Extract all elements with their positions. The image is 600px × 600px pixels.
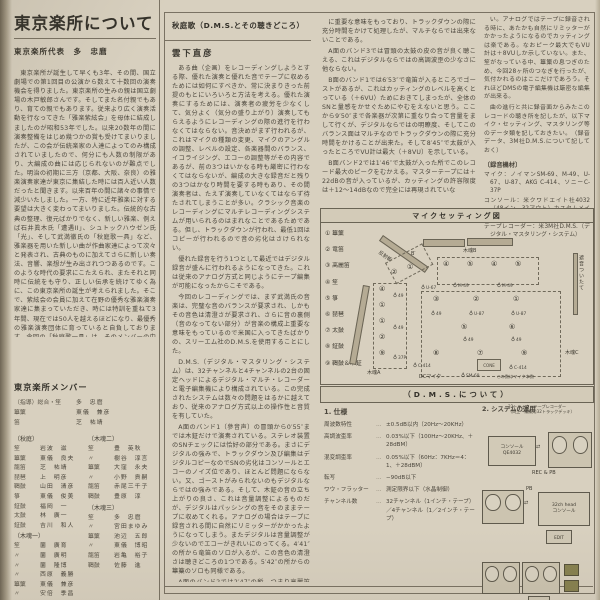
mic-setting-diagram: マイクセッティング図 ① 篳篥② 竜笛③ 高麗笛④ 笙⑤ 箏⑥ 琵琶⑦ 太鼓⑧ …	[320, 208, 594, 385]
member-name: 吉川 和人	[40, 522, 74, 532]
member-name: 薗 隆博	[40, 562, 68, 572]
group-title: （秋庭）	[14, 434, 82, 445]
spec-row: 高調波歪率 … 0.03%以下（100Hz〜20KHz、＋28dBM）	[324, 433, 476, 449]
legend-item: ③ 高麗笛	[325, 258, 371, 274]
member-name: 東儀 兼彦	[76, 408, 110, 418]
spec-term: 混変調歪率	[324, 454, 376, 470]
column-divider	[159, 0, 160, 600]
reflector-bar	[423, 239, 465, 247]
instrument-marker-④: ④	[491, 261, 497, 268]
body-paragraph: A面のバンド1（參音声）の冒頭から0′55″までは木鉦だけで演奏されている。ステ…	[172, 423, 310, 576]
member-row: 〃 西原 義勝	[14, 571, 82, 581]
member-name: 池辺 五郎	[114, 533, 148, 543]
member-role: 箏	[14, 493, 40, 503]
mic-49: 49	[393, 325, 404, 331]
member-row: 笙 薗 廣育	[14, 542, 82, 552]
liner-notes-page: 東京楽所について 東京楽所代表 多 忠麿 東京楽所が誕生して早くも3年、その間、…	[0, 0, 600, 600]
body-paragraph: 今回のレコーディングでは、まず武満氏の音楽は、完璧な音のバランスが要求され、しか…	[172, 293, 310, 356]
member-name: 多 忠麿	[76, 398, 104, 408]
dms-system-section: 2. システムの運用 32トラック・テープレコーダー （同上・編集用32トラック…	[482, 404, 592, 586]
mic-C-414: C-414	[509, 365, 527, 371]
mic-49: 49	[463, 337, 474, 343]
body-paragraph: A面のバンド3では冒頭の太鼓の皮の音が良く聴こえる、これはデジタルならではの高調…	[322, 47, 476, 74]
instrument-marker-⑨: ⑨	[379, 350, 385, 357]
member-name: 安倍 季昌	[40, 590, 74, 596]
member-row: 鉦鼓 吉川 和人	[14, 522, 82, 532]
member-row: 笙 多 忠麿	[88, 514, 156, 524]
diagram-node: DCマイク	[419, 373, 441, 380]
spec-heading: 1. 仕様	[324, 406, 476, 416]
spec-term: 転写	[324, 474, 376, 482]
essay-text: 東京楽所が誕生して早くも3年、その間、国立劇場での第1回目の公演から数えて十数回…	[14, 69, 156, 337]
spec-value: −90dB以下	[386, 474, 476, 482]
member-row: 琵琶 上 明彦	[14, 474, 82, 484]
tape-recorder-icon	[522, 562, 560, 594]
member-name: 西原 義勝	[40, 571, 74, 581]
member-name: 宮田まゆみ	[114, 523, 148, 533]
member-role: 笙	[14, 445, 40, 455]
spec-term: 周波数特性	[324, 421, 376, 429]
members-groups: （秋庭） 笙 岩波 滋 篳篥 東儀 良夫	[14, 434, 156, 596]
member-name: 芝 祐靖	[76, 418, 104, 428]
spec-value: 32チャンネル（1インチ・テープ）／4チャンネル（1／2インチ・テープ）	[386, 498, 476, 523]
members-group-column-b: （木魂二） 笙 豊 英秋 〃 樹谷 淳言	[88, 434, 156, 596]
instrument-marker-①: ①	[379, 302, 385, 309]
instrument-marker-⑨: ⑨	[521, 350, 527, 357]
instrument-marker-②: ②	[379, 334, 385, 341]
member-row: 箏 東儀 俊美	[14, 493, 82, 503]
diagram-node: 木魂A	[367, 369, 380, 376]
mic-49: 49	[511, 337, 522, 343]
group-outline	[437, 257, 539, 285]
group-rows: 笙 岩波 滋 篳篥 東儀 良夫 龍笛 芝 祐靖	[14, 445, 82, 531]
member-role: 篳篥	[88, 464, 114, 474]
instrument-marker-⑦: ⑦	[477, 350, 483, 357]
member-role: 篳篥	[14, 408, 76, 418]
member-row: 鞨鼓 山田 清彦	[14, 483, 82, 493]
spec-rows: 周波数特性 … ±0.5dB以内（20Hz〜20KHz） 高調波歪率 … 0.0…	[324, 421, 476, 523]
member-row: （指導）総合・笙 多 忠麿	[14, 398, 156, 408]
body-paragraph: い。アナログではテープに録音される時に、あたかも自然にリミッターがかかったように…	[484, 16, 590, 102]
dms-spec-section: 1. 仕様 周波数特性 … ±0.5dB以内（20Hz〜20KHz） 高調波歪率…	[324, 406, 476, 586]
instrument-marker-⑤: ⑤	[467, 261, 473, 268]
group-title: （木魂一）	[14, 531, 82, 542]
member-row: 笙 岩波 滋	[14, 445, 82, 455]
group-rows: 笙 薗 廣育 〃 薗 廣明 〃 薗 隆博	[14, 542, 82, 596]
member-row: 〃 東儀 博昭	[88, 542, 156, 552]
member-name: 東儀 俊美	[40, 493, 74, 503]
article-author: 雲下直彦	[172, 47, 310, 59]
console-box: コンソール QE4032	[488, 436, 536, 466]
spec-leader: …	[376, 498, 386, 523]
member-role: 〃	[14, 552, 40, 562]
title-rule	[14, 38, 156, 39]
member-role: 〃	[88, 542, 114, 552]
member-row: 篳篥 東儀 良夫	[14, 455, 82, 465]
article-body-column-1: ある曲（企画）をレコーディングしようとする際、優れた演奏と優れた音でテープに収め…	[172, 64, 310, 582]
instrument-marker-②: ②	[391, 269, 397, 276]
spec-row: 混変調歪率 … 0.05%以下（60Hz：7KHz＝4：1、＋28dBM）	[324, 454, 476, 470]
group-title: （木魂二）	[88, 434, 156, 445]
mic-stage: ① 篳篥② 竜笛③ 高麗笛④ 笙⑤ 箏⑥ 琵琶⑦ 太鼓⑧ 鉦鼓⑨ 鞨鼓＆木鉦 反…	[321, 223, 591, 382]
instrument-marker-④: ④	[443, 261, 449, 268]
spec-term: チャンネル数	[324, 498, 376, 523]
instrument-marker-①: ①	[407, 264, 413, 271]
member-row: 篳篥 池辺 五郎	[88, 533, 156, 543]
member-role: 龍笛	[14, 464, 40, 474]
member-row: 〃 薗 廣明	[14, 552, 82, 562]
dms-section-title: （D.M.S.について）	[320, 386, 594, 403]
system-canvas: コンソール QE4032⇄REC & PBPB⇄32ch head コンソールE…	[482, 414, 592, 586]
member-name: 岩波 滋	[40, 445, 68, 455]
member-role: 笛	[14, 418, 76, 428]
member-role: 篳篥	[88, 533, 114, 543]
spec-leader: …	[376, 454, 386, 470]
instrument-marker-①: ①	[379, 318, 385, 325]
instrument-marker-⑥: ⑥	[509, 324, 515, 331]
member-name: 薗 廣育	[40, 542, 68, 552]
mic-diagram-title: マイクセッティング図	[321, 209, 593, 223]
member-name: 福岡 一	[40, 503, 68, 513]
member-role: 鞨鼓	[88, 493, 114, 503]
member-row: 〃 樹谷 淳言	[88, 455, 156, 465]
page-right-edge-shadow	[595, 0, 600, 600]
diagram-node: 木魂C	[565, 349, 579, 356]
member-name: 豊 英秋	[114, 445, 142, 455]
mic-SM-69: SM-69	[461, 373, 479, 379]
spec-row: ワウ・フラッター … 測定限界以下（水晶制御）	[324, 486, 476, 494]
member-row: 笛 芝 祐靖	[14, 418, 156, 428]
body-paragraph: B面バンド2では1′46″で太鼓が入った所でこのレコード最大のピークをむかえる。…	[322, 159, 476, 195]
diagram-node: 遮音ついたて	[578, 255, 585, 291]
diagram-node: EDIT	[546, 530, 572, 544]
member-role: 〃	[14, 571, 40, 581]
body-paragraph: ある曲（企画）をレコーディングしようとする際、優れた演奏と優れた音でテープに収め…	[172, 64, 310, 253]
member-name: 芝 祐靖	[40, 464, 68, 474]
legend-item: ② 竜笛	[325, 242, 371, 258]
members-leaders: （指導）総合・笙 多 忠麿 篳篥 東儀 兼彦 笛 芝 祐靖	[14, 398, 156, 428]
left-column: 東京楽所について 東京楽所代表 多 忠麿 東京楽所が誕生して早くも3年、その間、…	[14, 8, 156, 596]
member-row: 〃 小野 貢嗣	[88, 474, 156, 484]
mic-37P: 37P	[393, 355, 406, 361]
spec-term: 高調波歪率	[324, 433, 376, 449]
diagram-node: 木魂B	[463, 247, 476, 254]
legend-item: ⑧ 鉦鼓	[325, 339, 371, 355]
body-paragraphs: い。アナログではテープに録音される時に、あたかも自然にリミッターがかかったように…	[484, 16, 590, 156]
spec-leader: …	[376, 474, 386, 482]
member-row: 太鼓 林 廣一	[14, 512, 82, 522]
spec-row: 転写 … −90dB以下	[324, 474, 476, 482]
group-rows: 笙 多 忠麿 〃 宮田まゆみ 篳篥 池辺 五郎	[88, 514, 156, 572]
member-role: 鉦鼓	[14, 503, 40, 513]
members-heading: 東京楽所メンバー	[14, 381, 156, 393]
member-role: 鞨鼓	[14, 483, 40, 493]
member-row: 篳篥 東儀 兼彦	[14, 581, 82, 591]
member-name: 東儀 良夫	[40, 455, 74, 465]
member-role: 鞨鼓	[88, 562, 114, 572]
spec-leader: …	[376, 486, 386, 494]
mic-M-49: M-49	[453, 283, 469, 289]
member-name: 薗 廣明	[40, 552, 68, 562]
member-name: 樹谷 淳言	[114, 455, 148, 465]
page-left-edge-shadow	[0, 0, 12, 600]
mic-M-49: M-49	[497, 283, 513, 289]
member-row: 鞨鼓 佐藤 進	[88, 562, 156, 572]
member-role: 〃	[14, 590, 40, 596]
diagram-node: ○の数はマイク本数	[497, 374, 534, 380]
body-paragraph: D.M.S.（デジタル・マスタリング・システム）は、32チャンネルと4チャンネル…	[172, 358, 310, 421]
member-name: 東儀 博昭	[114, 542, 148, 552]
spec-value: ±0.5dB以内（20Hz〜20KHz）	[386, 421, 476, 429]
member-role: 龍笛	[88, 483, 114, 493]
article-title-rule	[165, 40, 311, 41]
diagram-node: REC & PB	[532, 470, 556, 476]
instrument-marker-③: ③	[433, 296, 439, 303]
member-row: 〃 安倍 季昌	[14, 590, 82, 596]
mic-U-87: U-87	[469, 311, 484, 317]
article-body-column-2: に重要な意味をもっており、トラックダウンの際に充分時間をかけて処理したが、マルチ…	[322, 18, 476, 204]
mic-U-87: U-87	[511, 311, 526, 317]
spec-row: 周波数特性 … ±0.5dB以内（20Hz〜20KHz）	[324, 421, 476, 429]
instrument-marker-⑤: ⑤	[461, 324, 467, 331]
diagram-node: ⇄	[524, 500, 528, 506]
member-name: 山田 清彦	[40, 483, 74, 493]
member-row: 鉦鼓 福岡 一	[14, 503, 82, 513]
group-title: （木魂三）	[88, 503, 156, 514]
mic-49: 49	[393, 293, 404, 299]
instrument-marker-①: ①	[513, 296, 519, 303]
console-box: 32ch head コンソール	[538, 492, 590, 526]
diagram-node: PB	[526, 486, 532, 492]
reflector-bar	[467, 238, 513, 246]
tape-recorder-icon	[482, 490, 524, 524]
essay-paragraph: 東京楽所が誕生して早くも3年、その間、国立劇場での第1回目の公演から数えて十数回…	[14, 69, 156, 337]
member-role: 篳篥	[14, 455, 40, 465]
legend-item: ① 篳篥	[325, 226, 371, 242]
members-group-column-a: （秋庭） 笙 岩波 滋 篳篥 東儀 良夫	[14, 434, 82, 596]
member-name: 佐藤 進	[114, 562, 142, 572]
member-name: 小野 貢嗣	[114, 474, 148, 484]
body-paragraph: に重要な意味をもっており、トラックダウンの際に充分時間をかけて処理したが、マルチ…	[322, 18, 476, 45]
member-name: 上 明彦	[40, 474, 68, 484]
member-row: 篳篥 大窪 永夫	[88, 464, 156, 474]
member-role: 琵琶	[14, 474, 40, 484]
spec-leader: …	[376, 421, 386, 429]
member-role: 笙	[88, 445, 114, 455]
member-row: 笙 豊 英秋	[88, 445, 156, 455]
representative-line: 東京楽所代表 多 忠麿	[14, 46, 156, 57]
member-name: 林 廣一	[40, 512, 68, 522]
member-row: 〃 薗 隆博	[14, 562, 82, 572]
page-title: 東京楽所について	[14, 10, 156, 34]
group-rows: 笙 豊 英秋 〃 樹谷 淳言 篳篥 大窪 永夫	[88, 445, 156, 503]
diagram-node	[564, 580, 579, 592]
equipment-item: マイク：ノイマンSM-69、M-49、U-67、U-87、AKG C-414、ソ…	[484, 171, 590, 196]
member-name: 豊原 淳	[114, 493, 142, 503]
tape-recorder-icon	[548, 432, 592, 468]
member-row: 龍笛 岩亀 裕子	[88, 552, 156, 562]
spec-row: チャンネル数 … 32チャンネル（1インチ・テープ）／4チャンネル（1／2インチ…	[324, 498, 476, 523]
instrument-marker-⑧: ⑧	[433, 350, 439, 357]
member-role: 太鼓	[14, 512, 40, 522]
body-paragraph: B面のバンド1では6′53″で竜笛が入るところでゴーストがあるが、これはカッティ…	[322, 76, 476, 157]
member-row: 龍笛 赤尾三千子	[88, 483, 156, 493]
member-role: 〃	[14, 562, 40, 572]
member-role: 笙	[88, 514, 114, 524]
diagram-node: CONE	[477, 359, 501, 371]
member-role: 〃	[88, 455, 114, 465]
diagram-node	[564, 564, 579, 576]
member-row: 〃 宮田まゆみ	[88, 523, 156, 533]
member-name: 大窪 永夫	[114, 464, 148, 474]
member-name: 岩亀 裕子	[114, 552, 148, 562]
mic-C-414: C-414	[413, 363, 431, 369]
member-role: 龍笛	[88, 552, 114, 562]
body-paragraph: 曲の進行と共に録音面からみたこのレコードの聴き所を記したが、以下マイク・セッティ…	[484, 104, 590, 156]
mic-49: 49	[431, 311, 442, 317]
member-role: （指導）総合・笙	[14, 398, 76, 408]
spec-value: 測定限界以下（水晶制御）	[386, 486, 476, 494]
member-role: 篳篥	[14, 581, 40, 591]
instrument-marker-④: ④	[379, 286, 385, 293]
spec-value: 0.05%以下（60Hz：7KHz＝4：1、＋28dBM）	[386, 454, 476, 470]
member-role: 〃	[88, 474, 114, 484]
equipment-heading: 〔録音機材〕	[484, 160, 590, 169]
body-paragraph: 優れた録音を行う1つとして最近ではデジタル録音が盛んに行われるようになってきた。…	[172, 255, 310, 291]
tape-recorder-icon	[482, 562, 520, 594]
spec-term: ワウ・フラッター	[324, 486, 376, 494]
member-row: 龍笛 芝 祐靖	[14, 464, 82, 474]
diagram-node: ⇄	[536, 444, 540, 450]
member-row: 鞨鼓 豊原 淳	[88, 493, 156, 503]
member-row: 篳篥 東儀 兼彦	[14, 408, 156, 418]
spec-leader: …	[376, 433, 386, 449]
member-name: 多 忠麿	[114, 514, 142, 524]
member-role: 笙	[14, 542, 40, 552]
member-name: 東儀 兼彦	[40, 581, 74, 591]
article-title: 秋庭歌（D.M.S.とその聴きどころ）	[172, 20, 310, 31]
member-name: 赤尾三千子	[114, 483, 148, 493]
spec-value: 0.03%以下（100Hz〜20KHz、＋28dBM）	[386, 433, 476, 449]
instrument-marker-②: ②	[473, 296, 479, 303]
instrument-marker-⑤: ⑤	[515, 261, 521, 268]
legend-item: ⑦ 太鼓	[325, 323, 371, 339]
diagram-node: 2ch	[528, 596, 550, 600]
member-role: 〃	[88, 523, 114, 533]
body-paragraph: A面のバンド2では2′47″の所、つまり高麗笛と鉦鼓が終って笙、高麗笛、竜笛、篳…	[172, 578, 310, 582]
member-role: 鉦鼓	[14, 522, 40, 532]
